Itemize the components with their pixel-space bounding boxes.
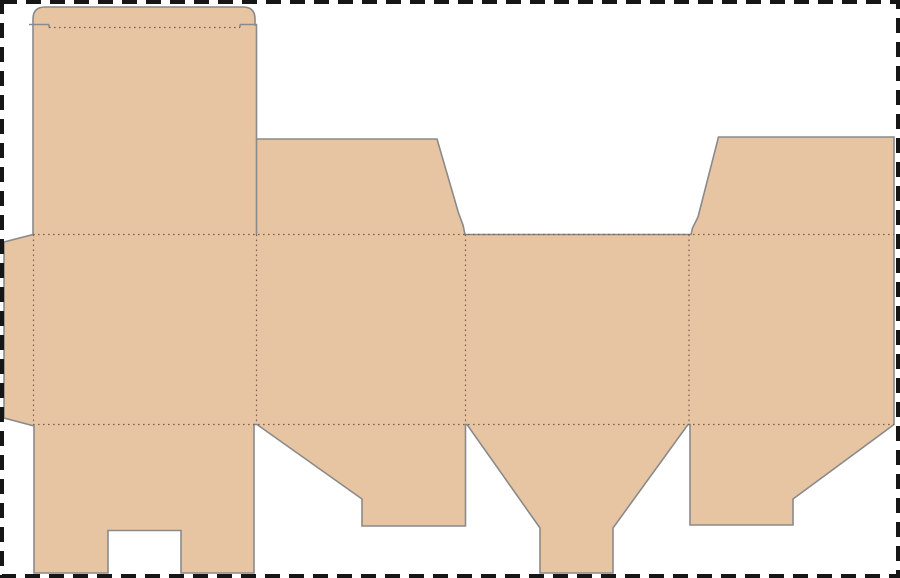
packaging-dieline-page [0, 0, 900, 578]
dieline-drawing [0, 0, 900, 578]
